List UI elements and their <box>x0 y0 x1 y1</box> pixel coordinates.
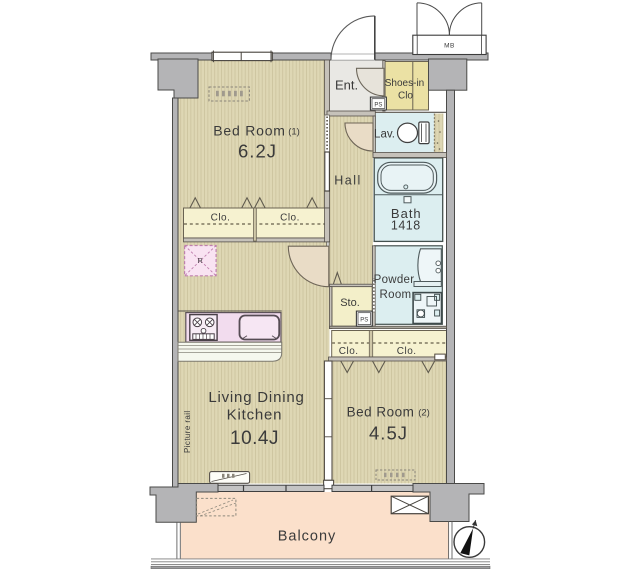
svg-text:10.4J: 10.4J <box>230 428 279 449</box>
svg-text:Bed Room: Bed Room <box>347 405 415 420</box>
svg-text:Bed Room: Bed Room <box>213 123 286 139</box>
svg-text:R: R <box>198 258 203 265</box>
svg-text:(2): (2) <box>418 408 430 419</box>
svg-text:Picture rail: Picture rail <box>183 410 192 453</box>
svg-text:Clo.: Clo. <box>339 346 359 357</box>
svg-text:Sto.: Sto. <box>340 297 360 309</box>
svg-text:Room: Room <box>380 289 412 301</box>
svg-text:PS: PS <box>360 318 368 324</box>
svg-text:Clo.: Clo. <box>397 346 417 357</box>
svg-text:Kitchen: Kitchen <box>227 407 283 424</box>
svg-text:Balcony: Balcony <box>278 529 337 545</box>
svg-text:Clo: Clo <box>398 91 413 102</box>
svg-text:Ent.: Ent. <box>335 78 358 93</box>
svg-text:Powder: Powder <box>374 274 415 286</box>
svg-text:PS: PS <box>374 102 382 108</box>
svg-text:Clo.: Clo. <box>211 213 231 224</box>
svg-text:Hall: Hall <box>334 174 362 188</box>
svg-text:Clo.: Clo. <box>280 213 300 224</box>
svg-text:Living Dining: Living Dining <box>208 389 304 406</box>
svg-text:6.2J: 6.2J <box>238 141 277 162</box>
svg-text:(1): (1) <box>288 127 300 138</box>
svg-text:Lav.: Lav. <box>374 129 395 141</box>
svg-text:MB: MB <box>444 43 455 50</box>
svg-text:1418: 1418 <box>391 219 421 233</box>
svg-text:Shoes-in: Shoes-in <box>385 78 424 89</box>
svg-text:4.5J: 4.5J <box>369 423 408 444</box>
